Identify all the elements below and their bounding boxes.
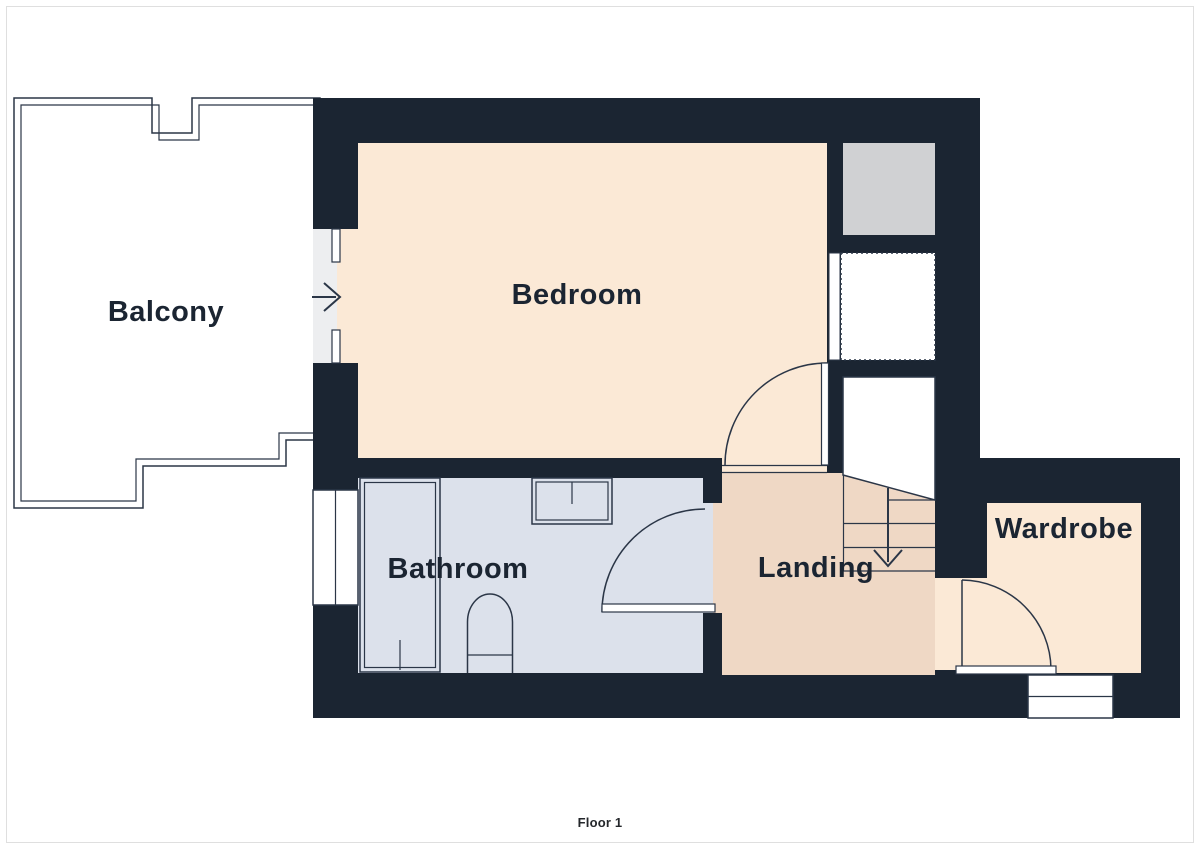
room-label-balcony: Balcony — [108, 296, 224, 328]
shaft-box — [843, 143, 935, 235]
window-bottom — [1028, 675, 1113, 718]
room-label-landing: Landing — [758, 552, 874, 584]
bathroom-door-opening-landing-side — [713, 503, 722, 613]
floor-plan-page: Balcony Bedroom Bathroom Landing Wardrob… — [0, 0, 1200, 849]
bathroom-door-leaf — [602, 604, 715, 612]
room-label-bathroom: Bathroom — [388, 553, 529, 585]
wardrobe-door-sill — [956, 666, 1056, 674]
wardrobe-doorway-floor — [935, 578, 987, 670]
room-label-bedroom: Bedroom — [512, 279, 643, 311]
void-glazing-strip — [829, 253, 840, 360]
bathroom-door-opening — [703, 503, 713, 613]
balcony-door-opening — [312, 229, 358, 363]
dashed-void-box — [841, 253, 935, 360]
window-left — [313, 490, 358, 605]
floor-caption: Floor 1 — [578, 815, 623, 830]
bedroom-door-leaf — [822, 363, 829, 465]
balcony-door-jamb-top — [332, 229, 340, 262]
room-label-wardrobe: Wardrobe — [995, 513, 1133, 545]
balcony-door-jamb-bottom — [332, 330, 340, 363]
floor-plan-canvas: Balcony Bedroom Bathroom Landing Wardrob… — [0, 0, 1200, 849]
